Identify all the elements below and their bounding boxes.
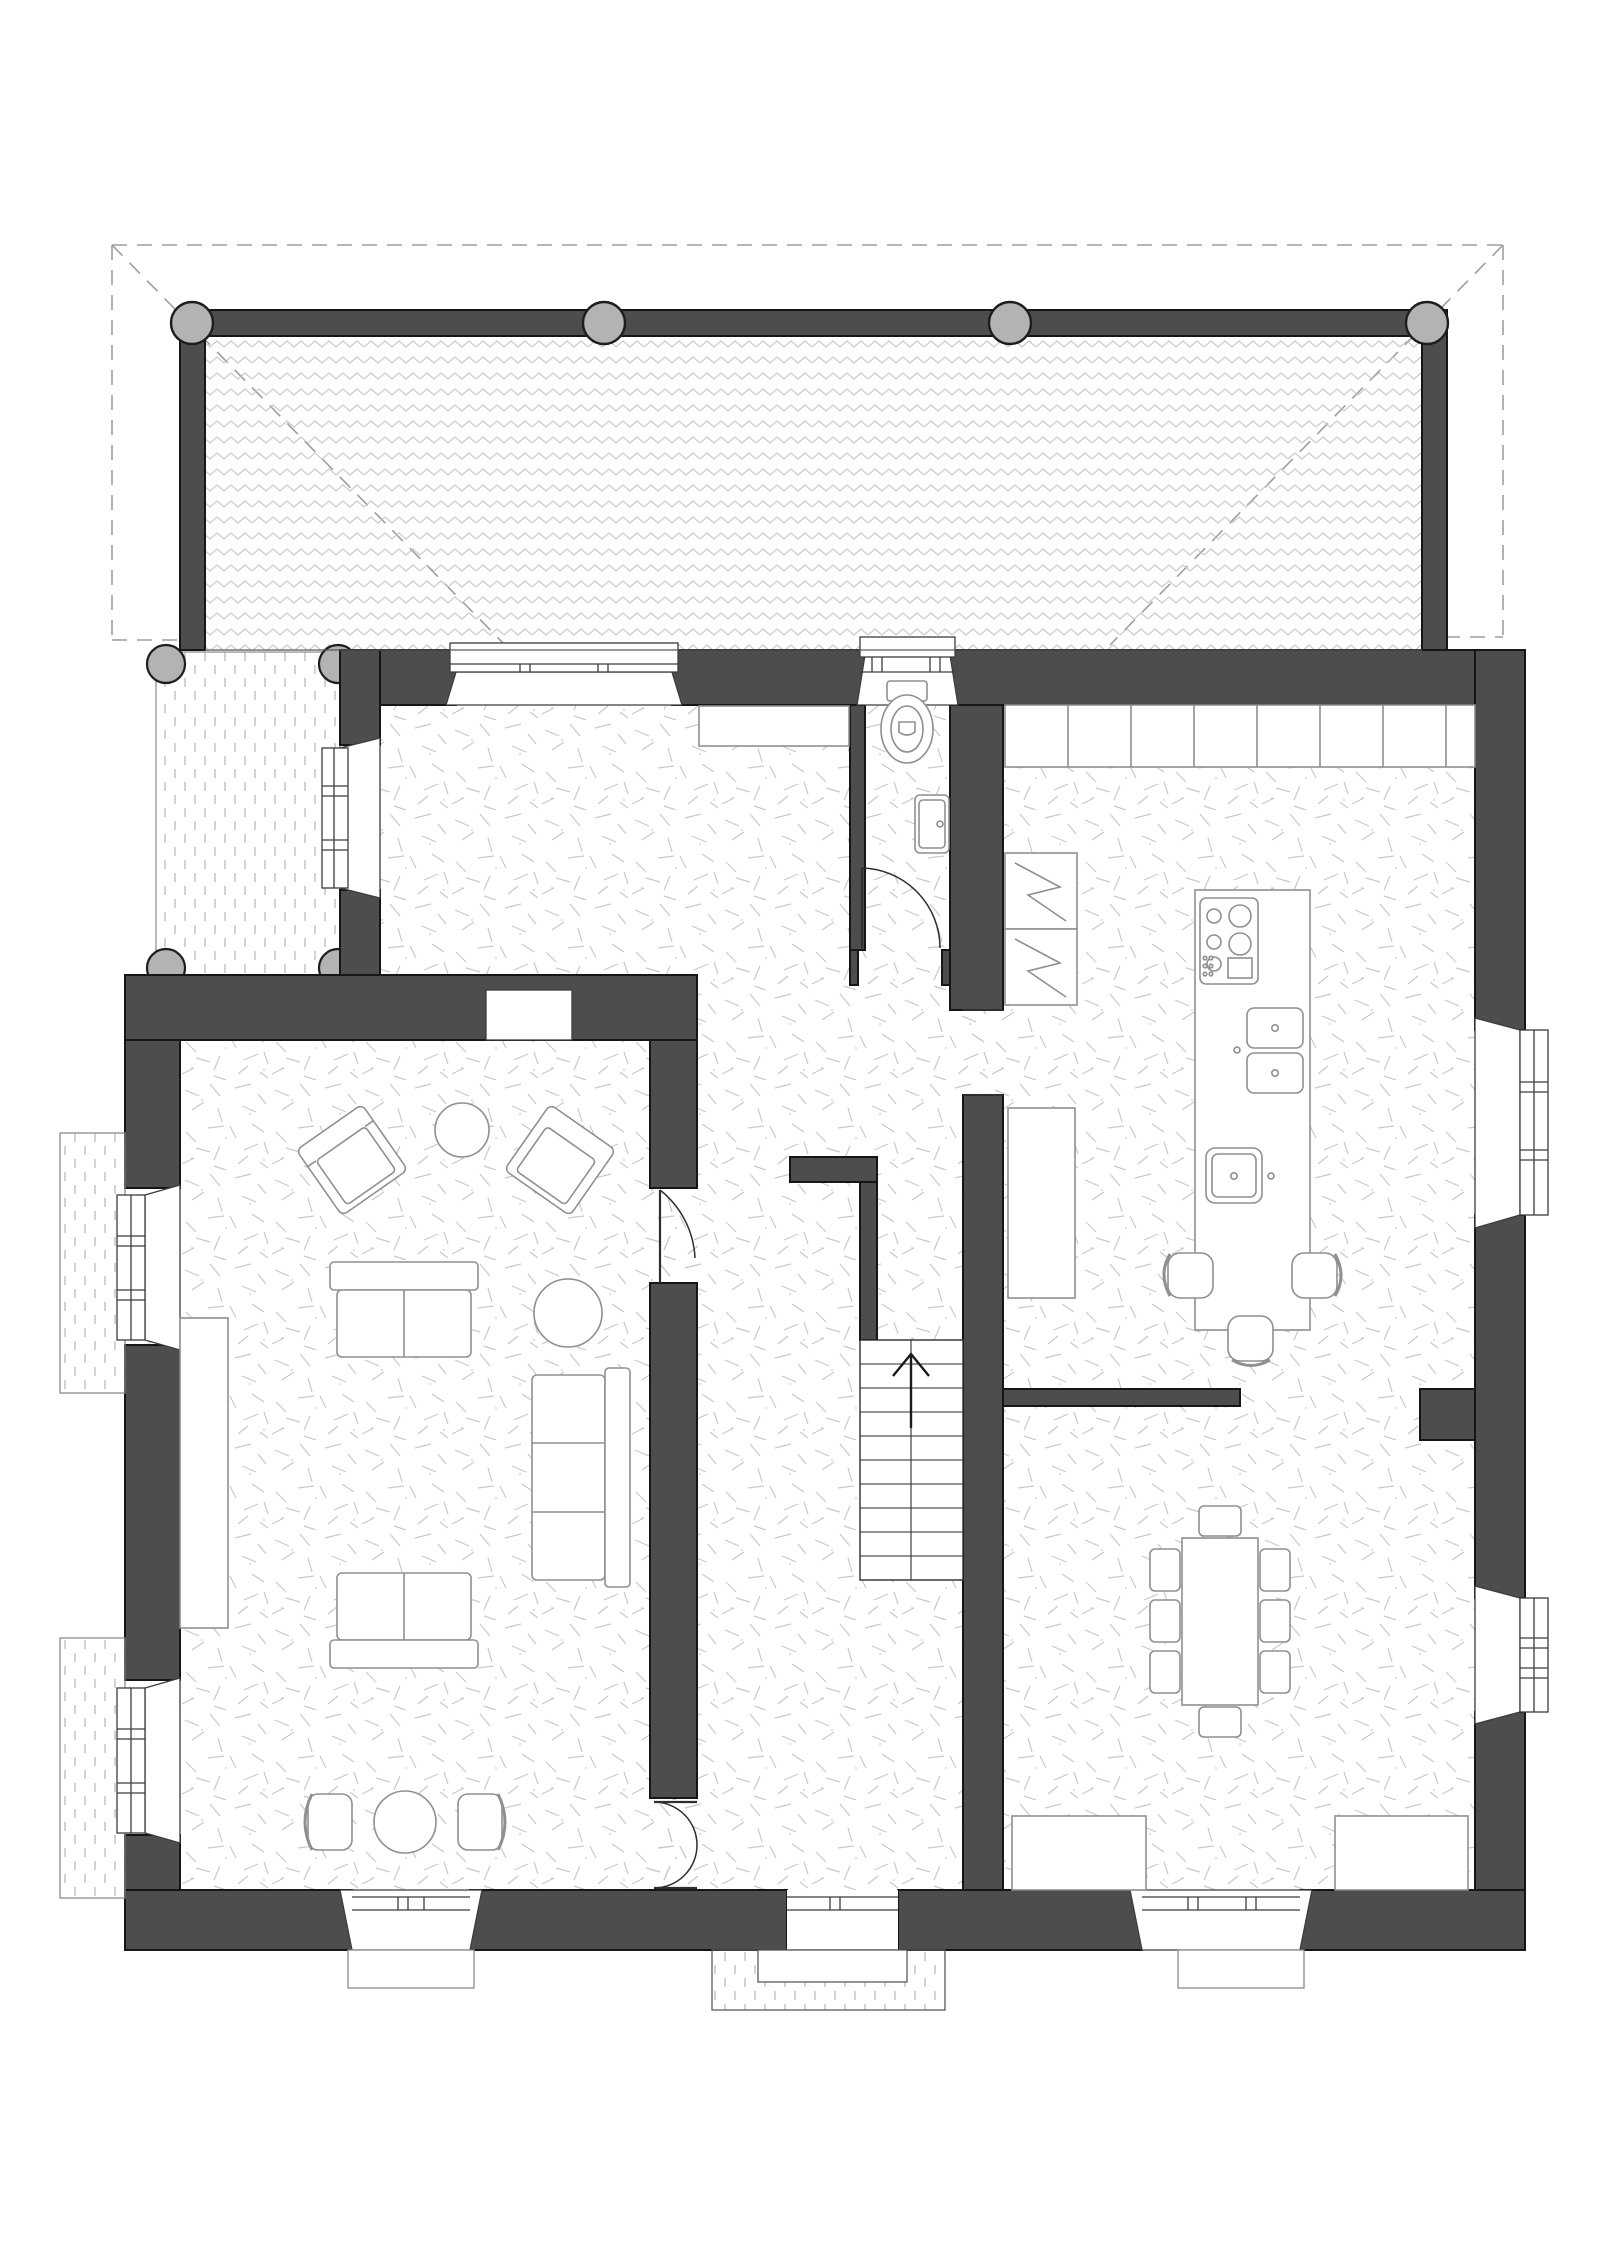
dining-chair	[1260, 1600, 1290, 1642]
bar-stool	[1292, 1253, 1341, 1298]
deck-column-icon	[171, 302, 213, 344]
east-window-reveal	[1475, 1018, 1520, 1228]
dining-chair	[1260, 1549, 1290, 1591]
dining-chair	[1150, 1651, 1180, 1693]
north-window-reveal	[446, 672, 682, 705]
dining-chair	[1199, 1506, 1241, 1536]
entry-step	[758, 1950, 907, 1982]
sitting-hall-west-wall	[340, 890, 380, 975]
living-room-north-wall	[125, 975, 697, 1040]
bistro-chair	[458, 1794, 505, 1850]
two-seat-sofa	[330, 1573, 478, 1668]
east-wall	[1475, 1712, 1525, 1890]
bar-stool	[1228, 1316, 1273, 1366]
cooktop-panel	[1228, 958, 1252, 978]
stair-flank-wall	[860, 1182, 877, 1340]
kitchen-dining-divider	[1003, 1389, 1240, 1406]
hall-cupboard	[699, 706, 849, 746]
window-sill-step	[348, 1950, 474, 1988]
west-wall	[125, 1835, 180, 1890]
veranda-deck	[205, 336, 1422, 650]
window-well-paving	[60, 1133, 125, 1393]
east-wall	[1475, 1215, 1525, 1598]
burner	[1229, 905, 1251, 927]
hall-west-wall	[650, 1283, 697, 1798]
round-side-table	[435, 1103, 489, 1157]
window-bench	[180, 1318, 228, 1628]
dining-chair	[1199, 1707, 1241, 1737]
sideboard	[1335, 1816, 1468, 1890]
toilet	[881, 681, 933, 763]
floor-plan-drawing	[0, 0, 1600, 2263]
front-door-opening	[787, 1890, 898, 1950]
spine-wall-south	[963, 1095, 1003, 1890]
three-seat-sofa	[532, 1368, 630, 1587]
staircase	[860, 1340, 963, 1580]
spine-wall-north	[950, 705, 1003, 1010]
west-window-reveal	[145, 1185, 180, 1350]
side-terrace	[156, 652, 340, 975]
deck-east-wall	[1422, 310, 1447, 650]
north-bay-window	[450, 643, 678, 672]
floor-plan-page	[0, 0, 1600, 2263]
pantry-unit	[1008, 1108, 1075, 1298]
sitting-hall-west-window	[322, 748, 348, 888]
deck-column-icon	[989, 302, 1031, 344]
burner	[1229, 933, 1251, 955]
faucet-icon	[1234, 1047, 1240, 1053]
island-sink	[1247, 1053, 1303, 1093]
bar-stool	[1164, 1253, 1213, 1298]
sitting-hall-west-wall	[340, 650, 380, 745]
faucet-icon	[1268, 1173, 1274, 1179]
north-wall	[672, 650, 865, 705]
south-wall	[898, 1890, 1142, 1950]
dining-chair	[1150, 1600, 1180, 1642]
deck-west-wall	[180, 310, 205, 650]
south-window-reveal	[340, 1890, 482, 1950]
island-sink	[1247, 1008, 1303, 1048]
kitchen-counter	[1005, 705, 1475, 767]
deck-column-icon	[1406, 302, 1448, 344]
window-well-paving	[60, 1638, 125, 1898]
east-window-reveal	[1475, 1586, 1520, 1724]
cooktop	[1200, 898, 1258, 984]
wc-south-wall	[850, 950, 858, 985]
south-wall	[1300, 1890, 1525, 1950]
round-coffee-table	[534, 1279, 602, 1347]
window-sill-step	[1178, 1950, 1304, 1988]
sideboard	[1012, 1816, 1146, 1890]
fridge-freezer	[1005, 853, 1077, 1005]
kitchen-dining-pier	[1420, 1389, 1475, 1440]
burner	[1207, 935, 1221, 949]
south-wall	[125, 1890, 352, 1950]
hall-west-wall	[650, 1040, 697, 1188]
west-wall	[125, 1345, 180, 1680]
bistro-table	[374, 1791, 436, 1853]
north-wall	[950, 650, 1525, 705]
stair-wall-stub	[790, 1157, 877, 1182]
wc-sink	[915, 795, 949, 853]
south-window-reveal	[1130, 1890, 1312, 1950]
bistro-chair	[305, 1794, 352, 1850]
deck-north-wall	[180, 310, 1447, 336]
south-wall	[470, 1890, 787, 1950]
east-wall	[1475, 650, 1525, 1030]
west-window-reveal	[145, 1678, 180, 1843]
dining-table	[1182, 1538, 1258, 1705]
dining-chair	[1150, 1549, 1180, 1591]
two-seat-sofa	[330, 1262, 478, 1357]
dining-chair	[1260, 1651, 1290, 1693]
burner	[1207, 909, 1221, 923]
fireplace-niche	[486, 990, 572, 1040]
deck-column-icon	[583, 302, 625, 344]
wc-window	[860, 637, 955, 657]
